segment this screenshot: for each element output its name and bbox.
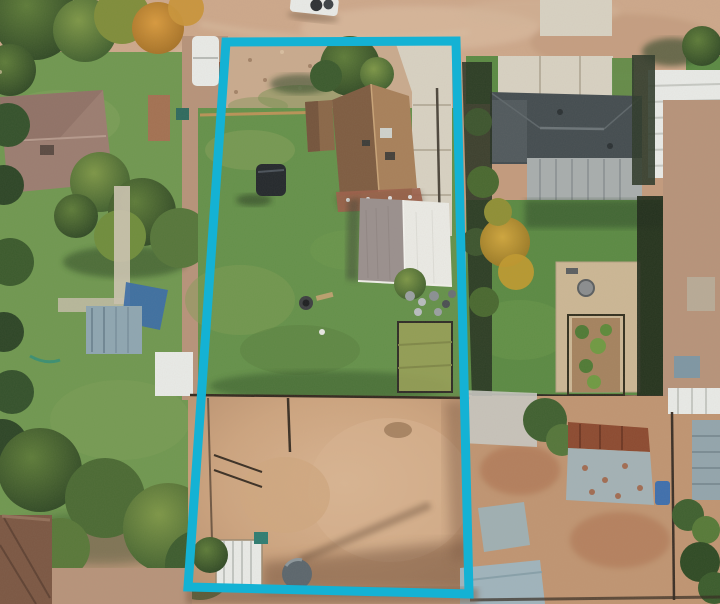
aerial-photo bbox=[0, 0, 720, 604]
photo-grain bbox=[0, 0, 720, 604]
aerial-photo-canvas bbox=[0, 0, 720, 604]
